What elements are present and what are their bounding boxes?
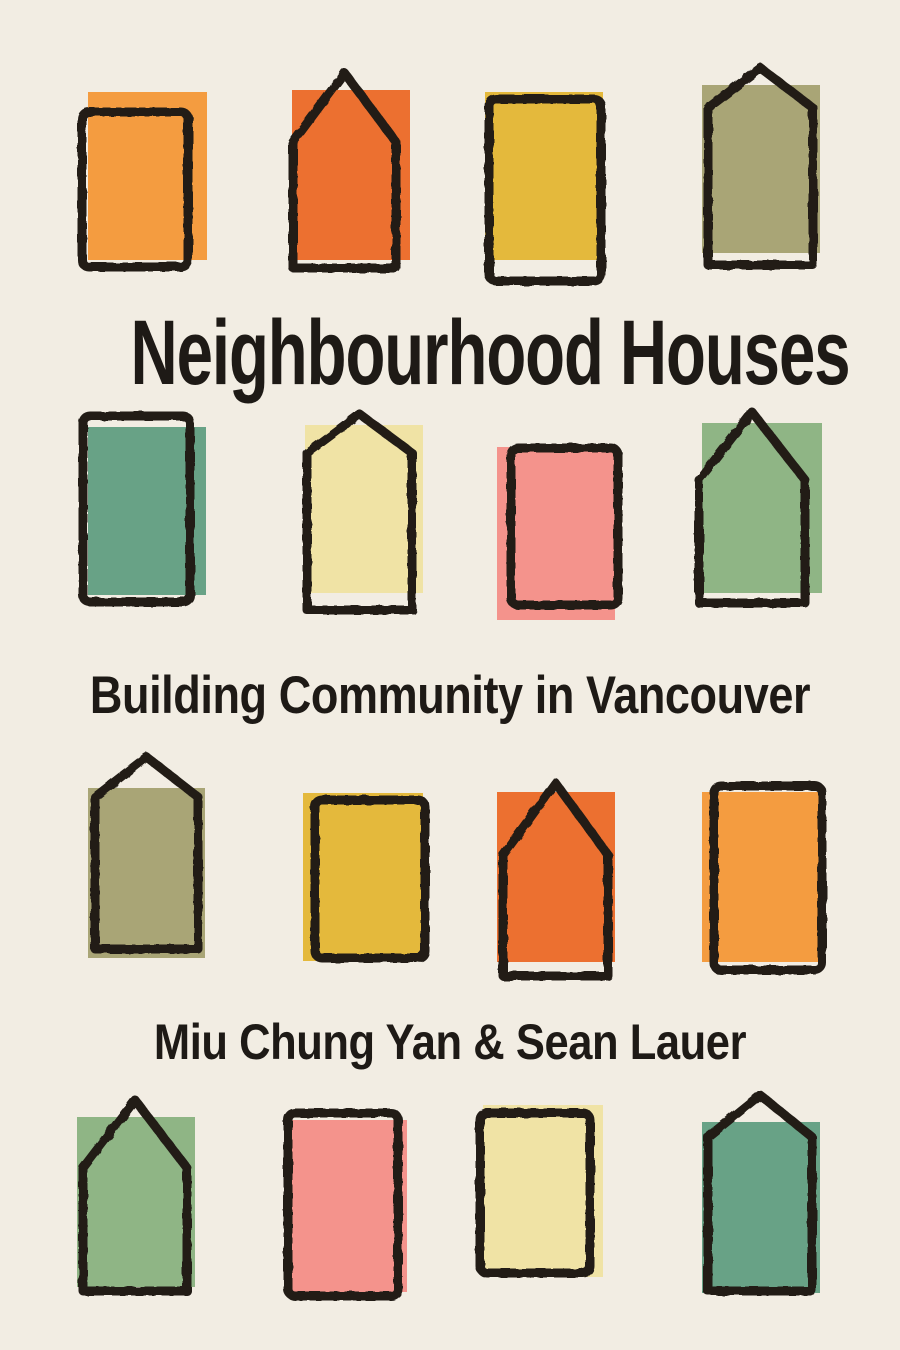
house-fill-block bbox=[483, 1105, 603, 1277]
house-r2c1-teal bbox=[83, 416, 206, 602]
house-r1c3-mustard bbox=[485, 92, 603, 281]
house-r3c3-orange_dark bbox=[497, 783, 615, 976]
house-r2c3-pink bbox=[497, 447, 618, 620]
house-fill-block bbox=[485, 92, 603, 260]
house-r2c4-green bbox=[699, 412, 822, 603]
house-fill-block bbox=[702, 1122, 820, 1293]
house-fill-block bbox=[303, 793, 423, 961]
house-fill-block bbox=[290, 1120, 407, 1292]
house-r1c2-orange_dark bbox=[292, 73, 410, 268]
house-fill-block bbox=[77, 1117, 195, 1287]
house-fill-block bbox=[88, 788, 205, 958]
house-r4c4-teal bbox=[702, 1095, 820, 1293]
house-r3c1-olive bbox=[88, 757, 205, 958]
house-r3c4-orange_light bbox=[702, 786, 822, 970]
house-r4c1-green bbox=[77, 1100, 195, 1291]
book-authors: Miu Chung Yan & Sean Lauer bbox=[59, 1017, 842, 1067]
house-r1c4-olive bbox=[702, 68, 820, 265]
book-subtitle: Building Community in Vancouver bbox=[68, 669, 833, 722]
house-r2c2-pale_yellow bbox=[305, 414, 423, 610]
house-r3c2-mustard bbox=[303, 793, 425, 961]
book-cover: Neighbourhood Houses Building Community … bbox=[0, 0, 900, 1350]
house-r4c3-pale_yellow bbox=[480, 1105, 603, 1277]
house-fill-block bbox=[702, 792, 820, 962]
house-r4c2-pink bbox=[288, 1113, 407, 1296]
house-fill-block bbox=[497, 792, 615, 962]
book-title: Neighbourhood Houses bbox=[131, 307, 770, 399]
house-fill-block bbox=[702, 85, 820, 253]
house-r1c1-orange_light bbox=[82, 92, 207, 267]
